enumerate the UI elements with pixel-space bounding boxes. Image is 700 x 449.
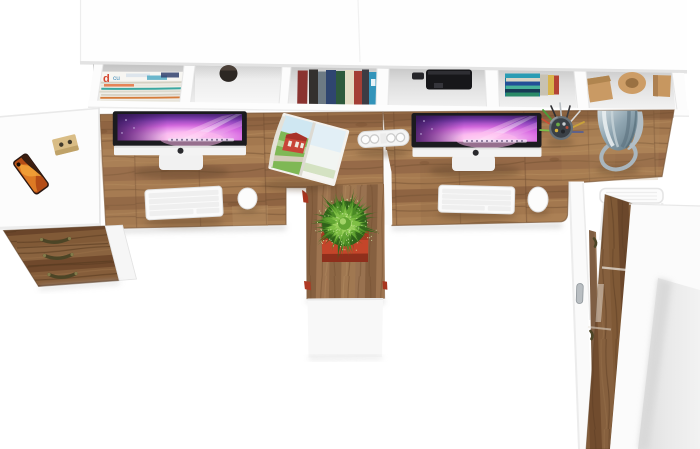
svg-text:cu: cu [113, 75, 120, 82]
svg-text:d: d [103, 73, 110, 85]
